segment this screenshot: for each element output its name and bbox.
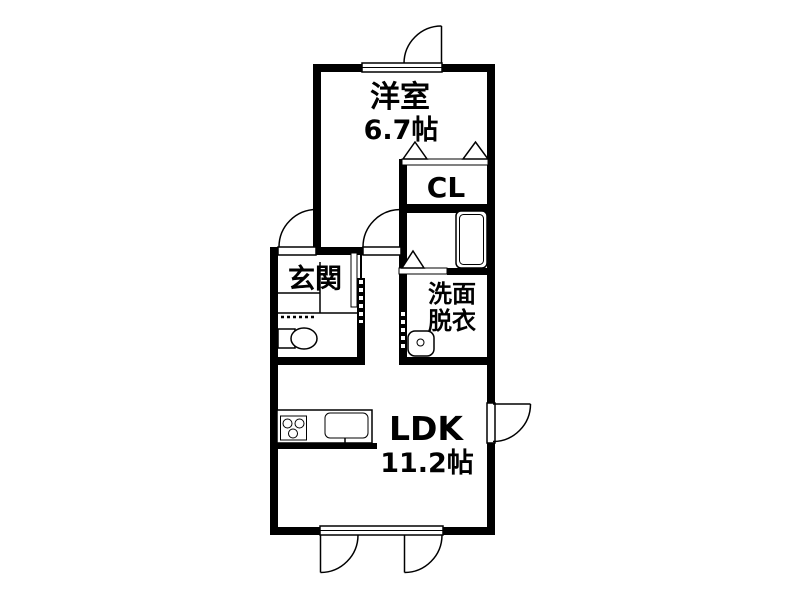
westernroom-label: 洋室 (370, 80, 430, 115)
kitchen-counter (277, 410, 372, 447)
closet-label: CL (427, 171, 466, 204)
wall-toilet-bottom (270, 357, 365, 365)
floor-plan: 洋室 6.7帖 CL 玄関 洗面 脱衣 LDK 11.2帖 (0, 0, 800, 600)
entrance-label: 玄関 (288, 263, 342, 295)
toilet-bowl (291, 328, 317, 349)
wall-kitchen-front (277, 443, 377, 449)
wall-bath-divider (447, 268, 495, 275)
ldk-right-door-sill (487, 403, 495, 443)
closet-folding-track (402, 159, 488, 165)
bathtub (456, 211, 487, 268)
wall-entrance-right (357, 325, 365, 365)
stove-burner-1 (283, 419, 292, 428)
stove-burner-3 (289, 429, 298, 438)
westernroom-size-label: 6.7帖 (364, 115, 439, 146)
toilet-sliding-door (357, 278, 365, 325)
wall-bottom-right (443, 527, 495, 535)
wall-right-lower (487, 443, 495, 535)
wall-right-upper (487, 64, 495, 403)
wall-bottom-left (270, 527, 320, 535)
bath-folding-track (399, 268, 447, 274)
wall-left-exterior (270, 247, 278, 535)
toilet (278, 328, 317, 349)
ldk-label: LDK (389, 409, 464, 448)
stove-burner-2 (295, 419, 304, 428)
washroom-label-line1: 洗面 (428, 280, 476, 308)
wall-washroom-bottom (399, 357, 495, 365)
ldk-size-label: 11.2帖 (380, 448, 474, 479)
washroom-label-line2: 脱衣 (428, 307, 476, 335)
hall-door-sill (363, 247, 401, 255)
floor-plan-drawing: 洋室 6.7帖 CL 玄関 洗面 脱衣 LDK 11.2帖 (0, 0, 800, 600)
shoe-cabinet (351, 253, 357, 307)
kitchen-sink (325, 413, 368, 438)
entrance-door-sill (278, 247, 316, 255)
